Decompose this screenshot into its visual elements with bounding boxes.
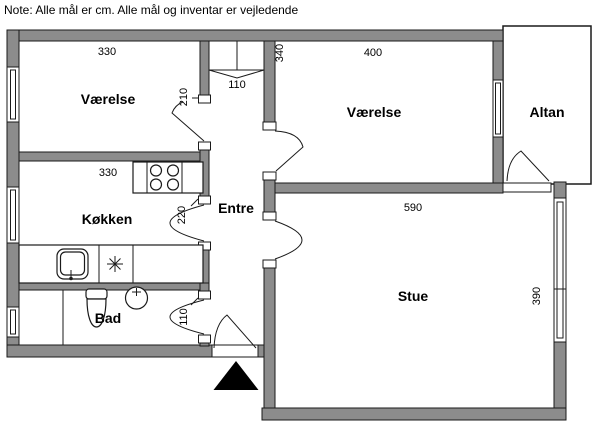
dim-vaerelse2-height: 340	[274, 44, 286, 62]
dim-vaerelse2-width: 400	[364, 47, 382, 59]
dim-vaerelse1-width: 330	[98, 46, 116, 58]
door-arc-vaerelse1	[172, 102, 204, 141]
dim-closet-width: 110	[228, 79, 246, 91]
wall	[7, 30, 503, 41]
window	[7, 67, 19, 122]
door-jamb	[199, 335, 211, 343]
room-label-bad: Bad	[95, 310, 121, 326]
room-label-koekken: Køkken	[82, 211, 133, 227]
dim-bad-door: 110	[178, 308, 190, 326]
closet	[209, 41, 264, 78]
closet-doors	[209, 70, 264, 78]
door-jamb	[199, 291, 211, 299]
room-label-altan: Altan	[530, 104, 565, 120]
dim-vaerelse1-door: 210	[178, 88, 190, 106]
door-jamb	[263, 260, 276, 268]
window	[493, 80, 503, 137]
window	[554, 198, 566, 342]
door-jamb	[263, 122, 276, 130]
wall	[200, 41, 209, 95]
wall	[264, 180, 275, 212]
wall	[200, 283, 209, 291]
sink-icon	[57, 249, 88, 280]
wall	[19, 283, 200, 290]
dim-koekken-width: 330	[99, 167, 117, 179]
wall	[264, 268, 275, 420]
door-arc-entrance	[214, 315, 256, 348]
door-jamb	[263, 172, 276, 180]
wall	[554, 342, 566, 408]
door-arc-stue	[275, 221, 302, 259]
room-label-vaerelse2: Værelse	[347, 104, 402, 120]
balcony-threshold	[503, 183, 551, 192]
wall	[554, 182, 566, 200]
stove-icon	[133, 162, 203, 193]
window	[7, 187, 19, 243]
door-jamb	[199, 95, 211, 103]
floor-plan-canvas: Værelse Køkken Bad Entre Værelse Stue Al…	[0, 0, 600, 423]
wall	[262, 408, 566, 420]
floor-plan: Note: Alle mål er cm. Alle mål og invent…	[0, 0, 600, 423]
window	[7, 307, 19, 337]
wall	[7, 345, 212, 357]
room-labels: Værelse Køkken Bad Entre Værelse Stue Al…	[81, 91, 565, 326]
door-jamb	[199, 142, 211, 150]
door-jamb	[199, 196, 211, 204]
wall	[19, 152, 200, 161]
entrance-threshold	[212, 345, 258, 357]
dim-koekken-door: 220	[176, 206, 188, 224]
door-jamb	[263, 212, 276, 220]
room-label-stue: Stue	[398, 288, 429, 304]
washbasin-icon	[126, 287, 148, 309]
dim-stue-height: 390	[531, 287, 543, 305]
room-label-vaerelse1: Værelse	[81, 91, 136, 107]
door-arc-balcony	[507, 151, 549, 181]
wall	[493, 41, 503, 80]
room-label-entre: Entre	[218, 200, 254, 216]
wall	[493, 137, 503, 183]
door-arc-vaerelse2	[275, 131, 303, 171]
dim-stue-width: 590	[404, 202, 422, 214]
doors	[170, 102, 549, 348]
wall	[275, 183, 503, 193]
entrance-arrow-icon	[214, 361, 259, 390]
